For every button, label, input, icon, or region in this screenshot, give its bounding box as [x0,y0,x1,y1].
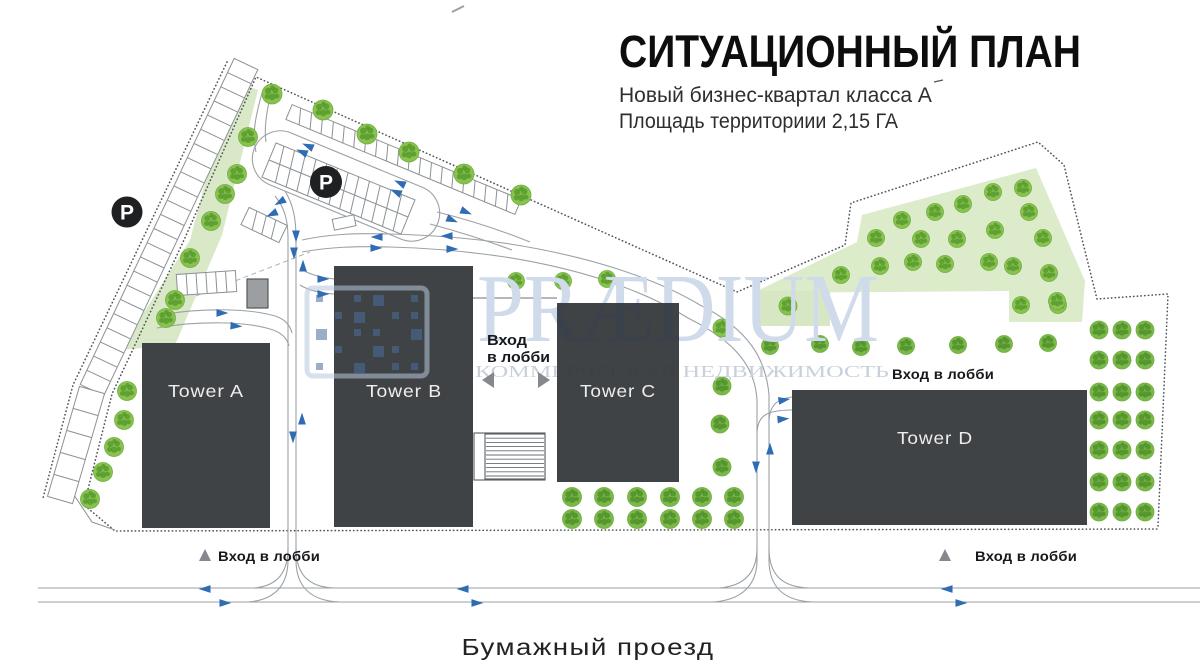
svg-text:в лобби: в лобби [487,349,550,366]
svg-text:Новый бизнес-квартал класса А: Новый бизнес-квартал класса А [619,84,932,107]
svg-text:P: P [319,172,333,195]
svg-text:P: P [120,202,134,225]
svg-text:Бумажный проезд: Бумажный проезд [462,634,715,660]
svg-text:Tower A: Tower A [168,381,244,401]
svg-text:Tower C: Tower C [580,381,656,401]
svg-text:Вход в лобби: Вход в лобби [892,367,994,382]
svg-text:Tower D: Tower D [897,428,973,448]
svg-text:Вход в лобби: Вход в лобби [975,549,1077,564]
svg-text:Tower B: Tower B [366,381,442,401]
svg-text:Вход в лобби: Вход в лобби [218,549,320,564]
svg-text:Площадь территориии 2,15 ГА: Площадь территориии 2,15 ГА [619,110,898,133]
svg-text:СИТУАЦИОННЫЙ ПЛАН: СИТУАЦИОННЫЙ ПЛАН [619,26,1081,77]
svg-text:Вход: Вход [487,332,528,349]
